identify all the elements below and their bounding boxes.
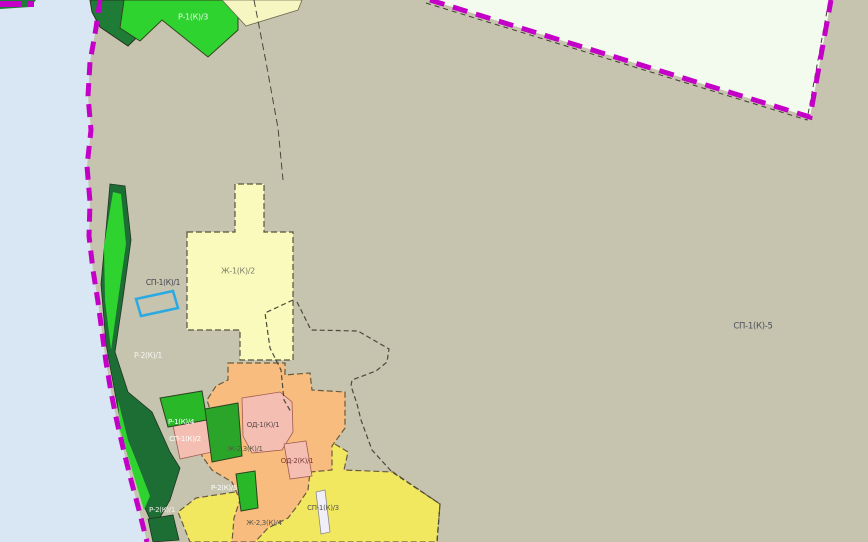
zone-darkgreen-bottom[interactable]	[148, 515, 179, 542]
zone-green-patch-main[interactable]	[205, 403, 242, 462]
zone-label-r2k5: Р-2(К)/5	[211, 484, 237, 492]
zone-label-od1k1: ОД-1(К)/1	[247, 421, 280, 429]
zone-label-zh1k2: Ж-1(К)/2	[221, 267, 255, 276]
map-viewport[interactable]: Р-1(К)/3Ж-1(К)/2СП-1(К)/1Р-2(К)/1СП-1(К)…	[0, 0, 868, 542]
zone-label-r1k4: Р-1(К)/4	[168, 418, 195, 426]
zone-label-sp1k2: СП-1(К)/2	[169, 435, 201, 443]
zone-label-zh23k1: Ж-2,3(К)/1	[227, 445, 262, 453]
zone-label-zh23k4: Ж-2,3(К)/4	[246, 519, 282, 527]
zone-label-r1k3: Р-1(К)/3	[178, 13, 208, 22]
zone-label-r2k1-lower: Р-2(К)/1	[149, 506, 175, 514]
zone-label-sp1k5: СП-1(К)-5	[733, 322, 772, 332]
zone-label-od2k1: ОД-2(К)/1	[281, 457, 314, 465]
zone-label-r2k1-upper: Р-2(К)/1	[134, 351, 163, 360]
zone-label-sp1k3: СП-1(К)/3	[307, 504, 339, 512]
zone-label-sp1k1: СП-1(К)/1	[146, 278, 181, 287]
zoning-map-canvas[interactable]: Р-1(К)/3Ж-1(К)/2СП-1(К)/1Р-2(К)/1СП-1(К)…	[0, 0, 868, 542]
